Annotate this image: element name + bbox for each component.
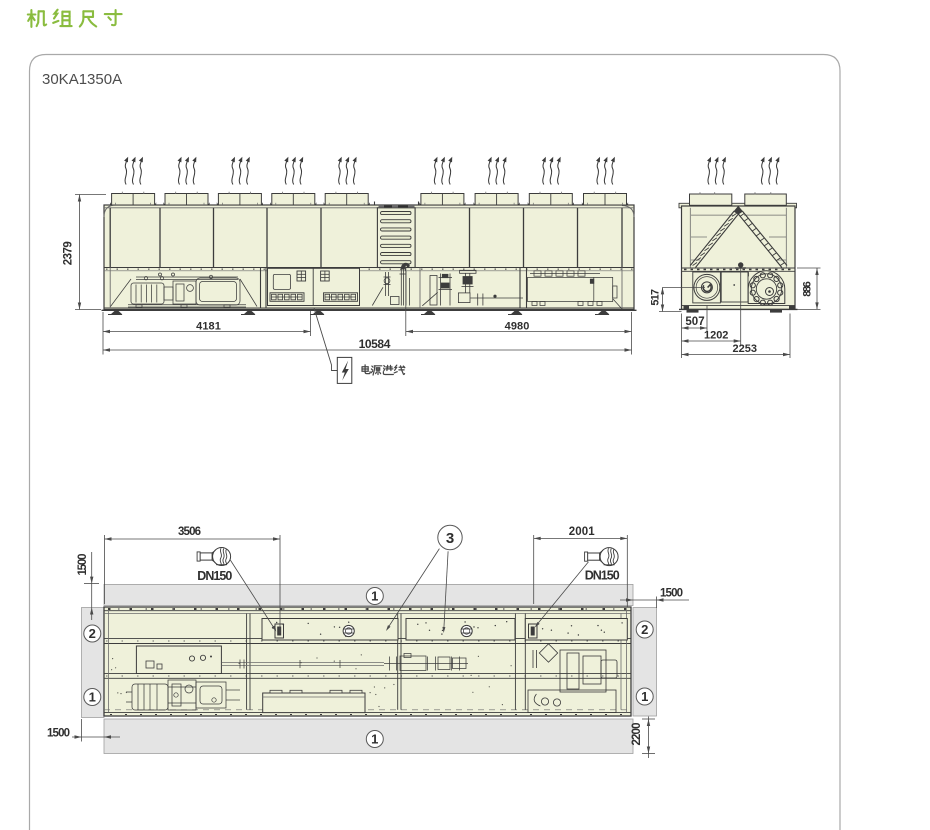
svg-text:DN150: DN150 <box>585 568 620 582</box>
svg-text:10584: 10584 <box>359 337 391 351</box>
svg-text:886: 886 <box>802 281 814 297</box>
svg-text:2001: 2001 <box>569 526 596 538</box>
svg-text:517: 517 <box>649 289 661 306</box>
svg-text:30KA1350A: 30KA1350A <box>42 71 122 88</box>
svg-text:1500: 1500 <box>660 588 683 600</box>
svg-text:1: 1 <box>371 732 378 747</box>
svg-text:2200: 2200 <box>631 723 643 746</box>
svg-text:3: 3 <box>446 530 454 547</box>
svg-text:2: 2 <box>89 626 96 641</box>
svg-text:2253: 2253 <box>733 343 757 355</box>
svg-text:507: 507 <box>685 316 704 328</box>
svg-text:2379: 2379 <box>63 241 75 265</box>
svg-text:1: 1 <box>89 690 96 705</box>
svg-text:1: 1 <box>371 589 378 604</box>
svg-text:3506: 3506 <box>178 526 201 538</box>
svg-text:1500: 1500 <box>77 554 89 576</box>
svg-text:2: 2 <box>641 622 648 637</box>
svg-text:DN150: DN150 <box>197 569 232 583</box>
svg-text:1500: 1500 <box>47 728 70 740</box>
svg-text:4181: 4181 <box>196 321 221 333</box>
svg-text:4980: 4980 <box>505 321 530 333</box>
svg-text:1202: 1202 <box>704 330 728 342</box>
svg-text:1: 1 <box>641 689 648 704</box>
